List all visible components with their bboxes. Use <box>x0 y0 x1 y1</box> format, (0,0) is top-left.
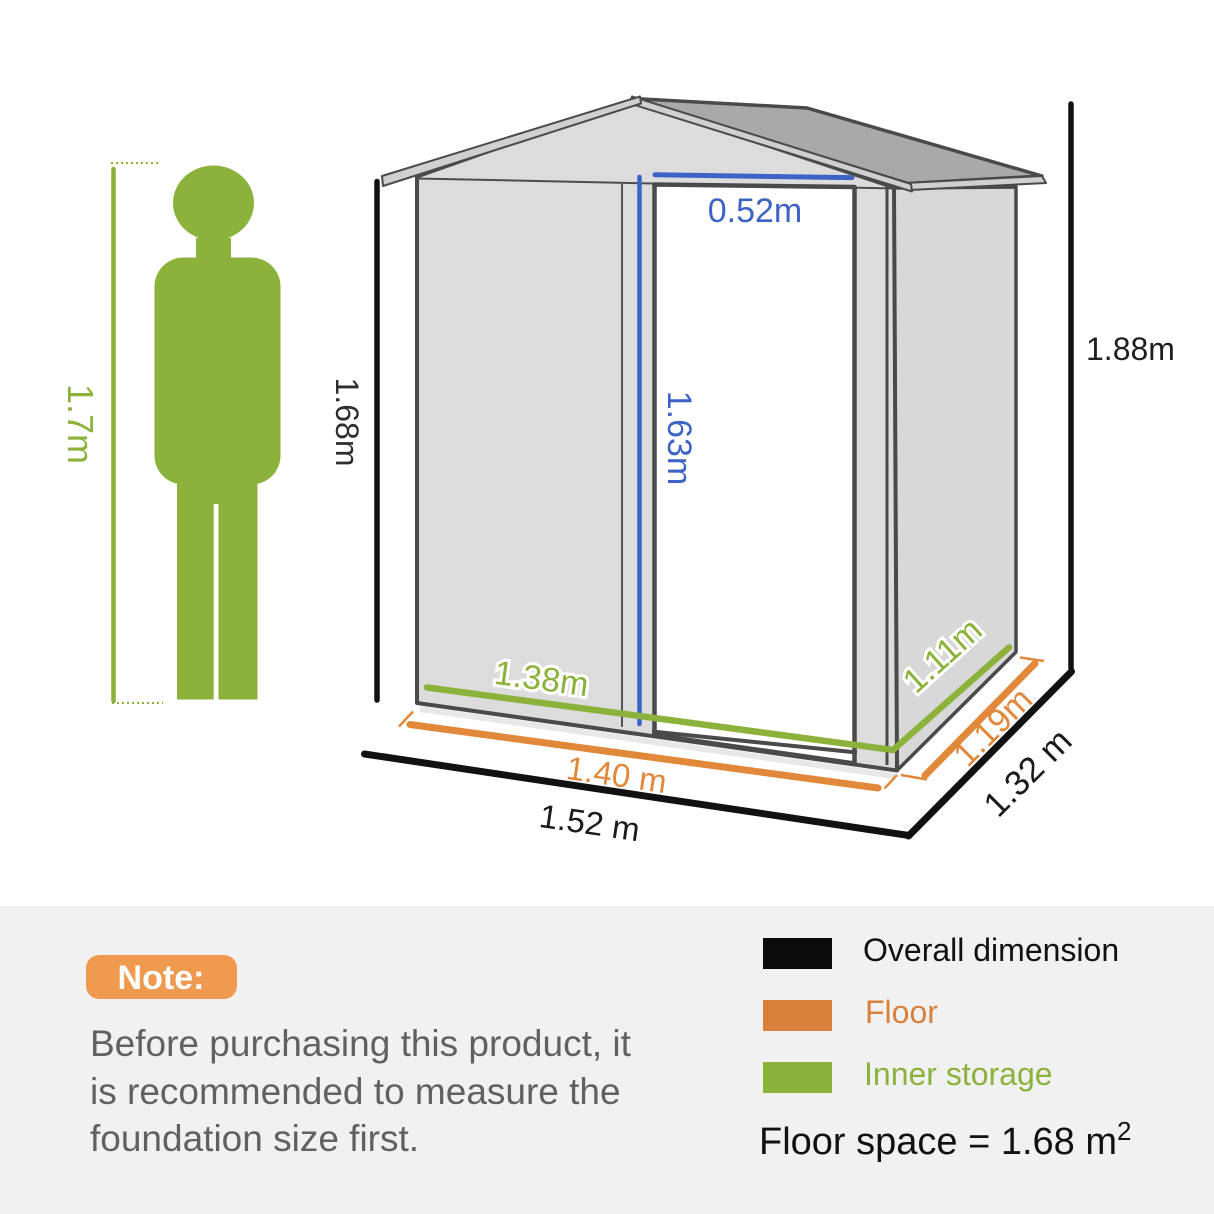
svg-text:0.52m: 0.52m <box>708 192 803 230</box>
svg-text:Overall dimension: Overall dimension <box>863 932 1119 968</box>
svg-text:Floor: Floor <box>865 994 938 1030</box>
svg-text:Inner storage: Inner storage <box>864 1056 1053 1092</box>
svg-text:Before purchasing this product: Before purchasing this product, it <box>90 1023 632 1064</box>
svg-text:1.68m: 1.68m <box>329 378 365 467</box>
svg-text:1.63m: 1.63m <box>660 391 698 486</box>
svg-text:Note:: Note: <box>118 959 205 997</box>
svg-text:1.7m: 1.7m <box>60 384 101 464</box>
svg-text:1.88m: 1.88m <box>1086 331 1175 367</box>
svg-text:foundation size first.: foundation size first. <box>90 1118 419 1159</box>
svg-text:is recommended to measure the: is recommended to measure the <box>90 1071 621 1112</box>
svg-text:Floor space = 1.68 m2: Floor space = 1.68 m2 <box>759 1116 1131 1163</box>
